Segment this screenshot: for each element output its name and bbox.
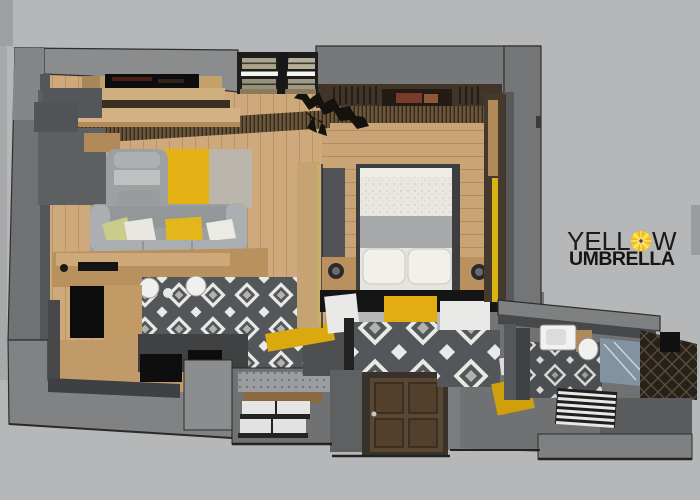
svg-text:UMBRELLA: UMBRELLA [569, 248, 675, 270]
